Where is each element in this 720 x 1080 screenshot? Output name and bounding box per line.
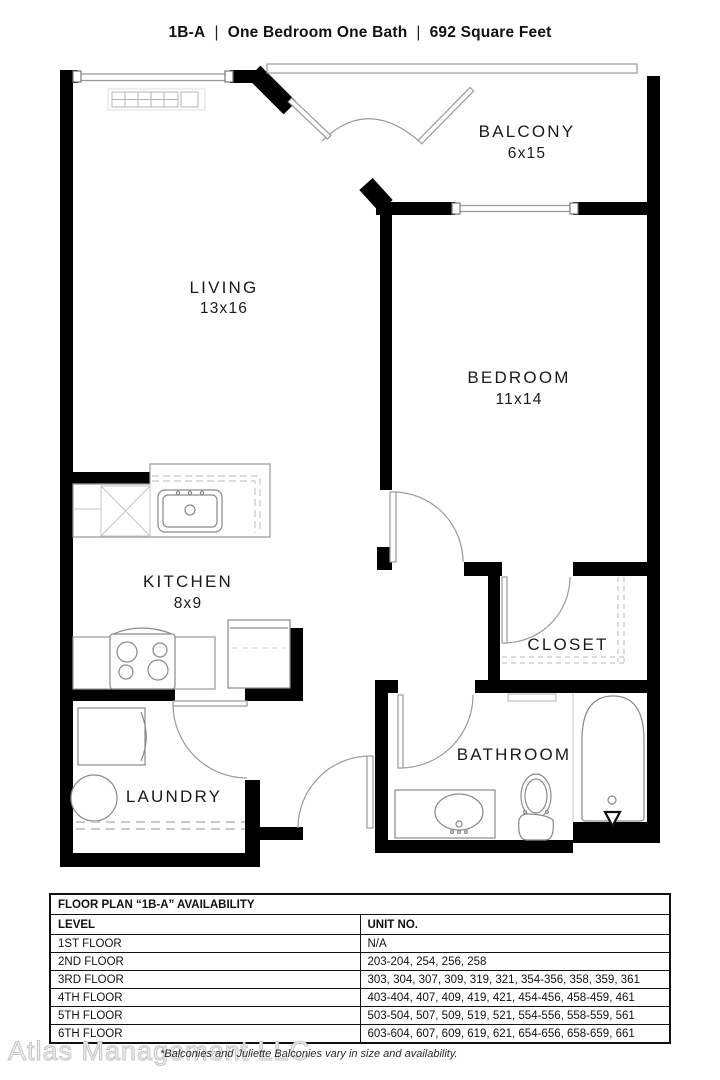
bathtub xyxy=(573,693,644,826)
wall-segment xyxy=(488,570,500,688)
refrigerator xyxy=(228,620,290,688)
table-row: 3RD FLOOR 303, 304, 307, 309, 319, 321, … xyxy=(50,971,670,989)
table-row: 1ST FLOOR N/A xyxy=(50,935,670,953)
balcony-railing xyxy=(267,64,637,73)
burner xyxy=(117,642,137,662)
units-cell: 403-404, 407, 409, 419, 421, 454-456, 45… xyxy=(360,989,670,1007)
window-end-cap xyxy=(73,71,81,82)
table-row: 2ND FLOOR 203-204, 254, 256, 258 xyxy=(50,953,670,971)
door-leaf xyxy=(418,87,473,143)
units-cell: 303, 304, 307, 309, 319, 321, 354-356, 3… xyxy=(360,971,670,989)
water-heater xyxy=(71,775,117,821)
door-leaf xyxy=(288,98,331,139)
toilet-bolt xyxy=(546,811,549,814)
faucet-dot xyxy=(176,491,179,494)
room-label-balcony: BALCONY xyxy=(479,122,576,141)
burner xyxy=(153,643,167,657)
balcony-footnote: *Balconies and Juliette Balconies vary i… xyxy=(160,1048,580,1060)
wall-segment xyxy=(573,562,647,576)
room-label-living: LIVING xyxy=(190,278,259,297)
availability-table: FLOOR PLAN “1B-A” AVAILABILITY LEVEL UNI… xyxy=(49,893,671,1044)
door-swing-arc xyxy=(173,704,247,778)
room-dims-balcony: 6x15 xyxy=(508,145,546,162)
door-leaf xyxy=(502,577,507,643)
wall-segment xyxy=(573,822,647,843)
column-header-units: UNIT NO. xyxy=(360,915,670,935)
washer xyxy=(78,708,146,765)
stove xyxy=(110,628,175,689)
wall-segment xyxy=(60,688,175,701)
wall-segment xyxy=(375,680,398,693)
laundry-door xyxy=(173,701,247,778)
door-leaf xyxy=(398,695,403,768)
room-dims-bedroom: 11x14 xyxy=(495,391,542,408)
bedroom-door xyxy=(390,492,463,562)
room-label-kitchen: KITCHEN xyxy=(143,572,233,591)
room-label-laundry: LAUNDRY xyxy=(126,787,222,806)
wall-segment xyxy=(380,215,392,490)
wall-segment xyxy=(290,628,303,694)
heater-unit xyxy=(108,89,205,110)
closet-door xyxy=(502,577,570,643)
room-label-bathroom: BATHROOM xyxy=(457,745,572,764)
door-swing-arc xyxy=(393,492,463,562)
wall-segment xyxy=(376,202,455,215)
laundry-shelf-dashed xyxy=(76,822,245,829)
room-dims-kitchen: 8x9 xyxy=(174,595,203,612)
level-cell: 1ST FLOOR xyxy=(50,935,360,953)
door-leaf xyxy=(173,701,247,706)
table-row: 4TH FLOOR 403-404, 407, 409, 419, 421, 4… xyxy=(50,989,670,1007)
wall-segment xyxy=(254,72,290,108)
wall-segment xyxy=(60,70,73,867)
units-cell: N/A xyxy=(360,935,670,953)
bedroom-window xyxy=(452,203,578,214)
wall-segment xyxy=(573,202,660,215)
faucet-dot xyxy=(458,831,461,834)
units-cell: 203-204, 254, 256, 258 xyxy=(360,953,670,971)
floor-plan: LIVING 13x16 KITCHEN 8x9 LAUNDRY BALCONY… xyxy=(0,0,720,890)
column-header-level: LEVEL xyxy=(50,915,360,935)
availability-table-title-row: FLOOR PLAN “1B-A” AVAILABILITY xyxy=(50,894,670,915)
window-end-cap xyxy=(225,71,233,82)
balcony-door xyxy=(288,87,473,143)
wall-segment xyxy=(60,472,150,484)
sink-drain xyxy=(456,821,462,827)
living-window xyxy=(73,71,233,82)
room-label-bedroom: BEDROOM xyxy=(467,368,570,387)
level-cell: 5TH FLOOR xyxy=(50,1007,360,1025)
level-cell: 3RD FLOOR xyxy=(50,971,360,989)
door-leaf xyxy=(367,756,373,828)
entry-door xyxy=(298,756,373,828)
burner xyxy=(119,665,133,679)
faucet-dot xyxy=(451,831,454,834)
units-cell: 503-504, 507, 509, 519, 521, 554-556, 55… xyxy=(360,1007,670,1025)
room-label-closet: CLOSET xyxy=(527,635,608,654)
window-end-cap xyxy=(452,203,460,214)
kitchen-sink xyxy=(158,490,222,532)
toilet xyxy=(519,774,554,840)
level-cell: 2ND FLOOR xyxy=(50,953,360,971)
availability-table-title: FLOOR PLAN “1B-A” AVAILABILITY xyxy=(50,894,670,915)
wall-segment xyxy=(647,76,660,843)
room-dims-living: 13x16 xyxy=(200,300,248,317)
tub-drain xyxy=(608,796,616,804)
faucet-dot xyxy=(188,491,191,494)
level-cell: 4TH FLOOR xyxy=(50,989,360,1007)
sink-drain xyxy=(185,505,195,515)
toilet-bolt xyxy=(524,811,527,814)
vanity xyxy=(395,790,495,838)
door-leaf xyxy=(390,492,396,562)
door-swing-arc xyxy=(298,756,370,828)
table-row: 5TH FLOOR 503-504, 507, 509, 519, 521, 5… xyxy=(50,1007,670,1025)
faucet-dot xyxy=(200,491,203,494)
wall-segment xyxy=(60,853,260,867)
door-swing-arc xyxy=(322,119,420,142)
shower-shelf xyxy=(508,694,556,701)
wall-segment xyxy=(375,840,573,853)
faucet-dot xyxy=(465,831,468,834)
availability-table-header-row: LEVEL UNIT NO. xyxy=(50,915,670,935)
window-end-cap xyxy=(570,203,578,214)
burner xyxy=(148,660,168,680)
door-swing-arc xyxy=(504,577,570,643)
wall-segment xyxy=(375,693,388,840)
wall-segment xyxy=(245,827,303,840)
wall-segment xyxy=(475,680,647,693)
